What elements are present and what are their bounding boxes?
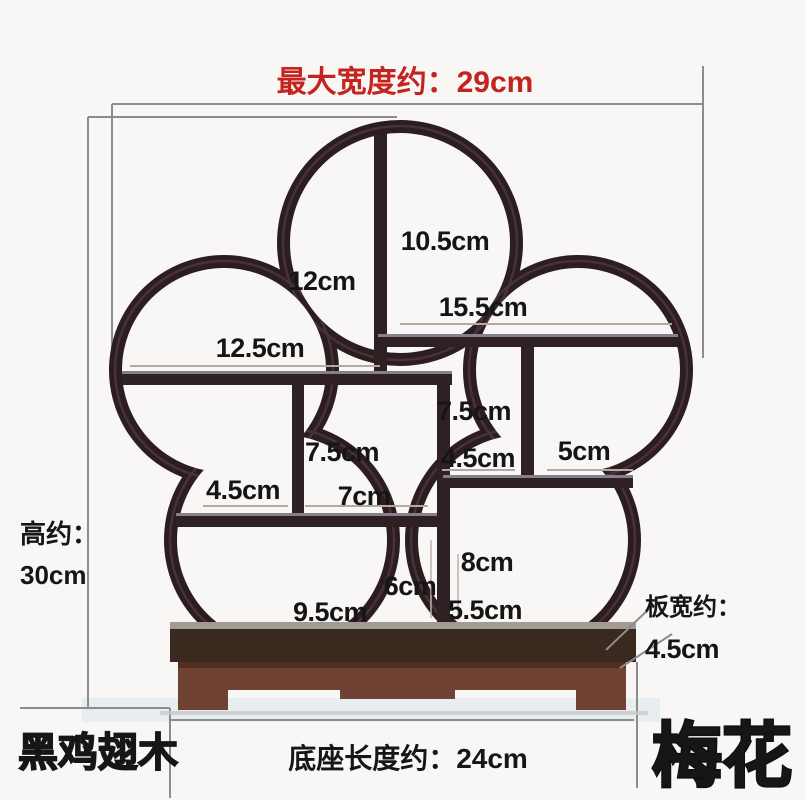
board-width-prefix: 板宽约： (645, 593, 741, 621)
product-name-caption: 梅花 (652, 717, 792, 795)
measure-upper-left-shelf: 12.5cm (216, 333, 305, 363)
dimension-diagram: 最大宽度约：29cm 高约： 30cm 12cm 10.5cm 15.5cm 1… (0, 0, 806, 800)
board-width-value: 4.5cm (645, 634, 719, 664)
max-width-title: 最大宽度约：29cm (277, 65, 534, 99)
measure-top-left-height: 12cm (288, 266, 355, 296)
base-apron-shadow (178, 662, 626, 668)
product-dimension-image: 最大宽度约：29cm 高约： 30cm 12cm 10.5cm 15.5cm 1… (0, 0, 806, 800)
measure-upper-right-shelf: 15.5cm (439, 292, 528, 322)
base-slab-top-face (170, 622, 636, 629)
divider-mid-right-vertical (521, 345, 534, 488)
measure-lower-right-width: 5.5cm (448, 595, 522, 625)
measure-mid-left-width: 4.5cm (206, 475, 280, 505)
measure-mid-center-width: 7cm (338, 481, 391, 511)
height-label-prefix: 高约： (20, 519, 98, 549)
height-label-value: 30cm (20, 560, 87, 590)
measure-mid-right-width: 4.5cm (441, 443, 515, 473)
measure-top-right-height: 10.5cm (401, 226, 490, 256)
measure-lower-right-height: 8cm (461, 547, 514, 577)
wood-type-caption: 黑鸡翅木 (18, 731, 178, 775)
measure-mid-right-height: 7.5cm (437, 396, 511, 426)
measure-right-shelf-width: 5cm (558, 436, 611, 466)
divider-top-vertical (374, 134, 387, 385)
table-edge-band (82, 698, 660, 722)
measure-mid-center-height: 7.5cm (305, 437, 379, 467)
base-slab (170, 629, 636, 662)
base-ground-shadow (160, 711, 648, 715)
measure-lower-center-height: 6cm (384, 571, 437, 601)
divider-mid-left-vertical (292, 378, 304, 518)
measure-lower-left-width: 9.5cm (293, 597, 367, 627)
base-length-caption: 底座长度约：24cm (288, 742, 528, 774)
